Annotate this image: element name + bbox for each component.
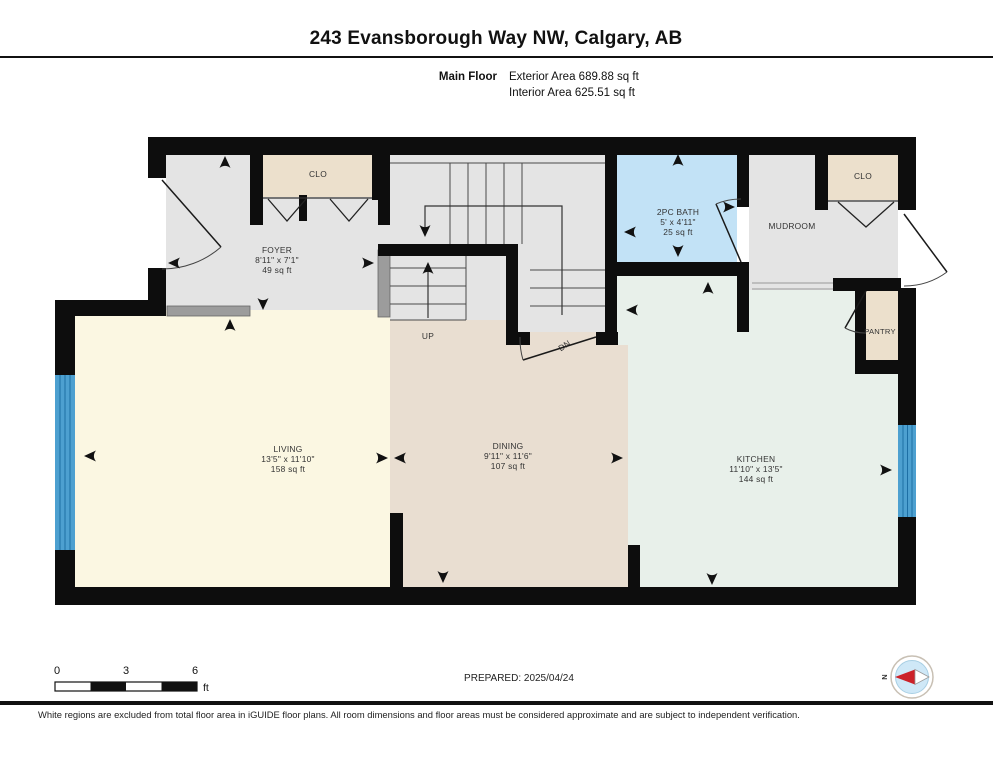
foyer-name: FOYER	[262, 245, 292, 255]
kitchen-window	[898, 425, 916, 517]
foyer-railing	[167, 306, 250, 316]
title-divider	[0, 56, 993, 58]
stairs-up-label: UP	[422, 331, 434, 341]
stair-railing	[378, 250, 390, 317]
floorplan-page: 243 Evansborough Way NW, Calgary, AB Mai…	[0, 0, 993, 768]
room-living-floor	[73, 310, 390, 587]
living-dims: 13'5" x 11'10"	[261, 454, 314, 464]
foyer-closet-name: CLO	[309, 169, 327, 179]
mud-closet-name: CLO	[854, 171, 872, 181]
living-window	[55, 375, 75, 550]
compass-north-label: N	[880, 674, 889, 679]
pantry-name: PANTRY	[864, 327, 896, 336]
living-area: 158 sq ft	[271, 464, 306, 474]
disclaimer-text: White regions are excluded from total fl…	[38, 709, 800, 720]
foyer-area: 49 sq ft	[262, 265, 292, 275]
page-title: 243 Evansborough Way NW, Calgary, AB	[310, 28, 683, 49]
kitchen-dims: 11'10" x 13'5"	[729, 464, 782, 474]
prepared-date: PREPARED: 2025/04/24	[464, 673, 574, 684]
scale-tick-0: 0	[54, 665, 60, 677]
bath-name: 2PC BATH	[657, 207, 699, 217]
kitchen-name: KITCHEN	[737, 454, 776, 464]
scale-tick-6: 6	[192, 665, 198, 677]
scale-tick-3: 3	[123, 665, 129, 677]
kitchen-area: 144 sq ft	[739, 474, 774, 484]
footer-divider	[0, 701, 993, 705]
scale-unit: ft	[203, 682, 209, 694]
room-pantry-floor	[866, 291, 898, 360]
dining-dims: 9'11" x 11'6"	[484, 451, 532, 461]
interior-area-label: Interior Area 625.51 sq ft	[509, 87, 636, 99]
floor-plan-canvas: 243 Evansborough Way NW, Calgary, AB Mai…	[0, 0, 993, 768]
footer: White regions are excluded from total fl…	[0, 701, 993, 720]
bath-area: 25 sq ft	[663, 227, 693, 237]
stairs-floor-upper	[390, 155, 605, 252]
dining-name: DINING	[493, 441, 524, 451]
scale-bar: 0 3 6 ft	[54, 665, 209, 694]
header: 243 Evansborough Way NW, Calgary, AB Mai…	[0, 28, 993, 99]
living-name: LIVING	[274, 444, 303, 454]
compass-icon: N	[880, 656, 933, 698]
foyer-dims: 8'11" x 7'1"	[255, 255, 299, 265]
floor-label: Main Floor	[439, 71, 498, 83]
bath-dims: 5' x 4'11"	[660, 217, 696, 227]
dining-area: 107 sq ft	[491, 461, 526, 471]
mudroom-name: MUDROOM	[769, 221, 816, 231]
exterior-area-label: Exterior Area 689.88 sq ft	[509, 71, 640, 83]
back-door	[904, 214, 947, 286]
